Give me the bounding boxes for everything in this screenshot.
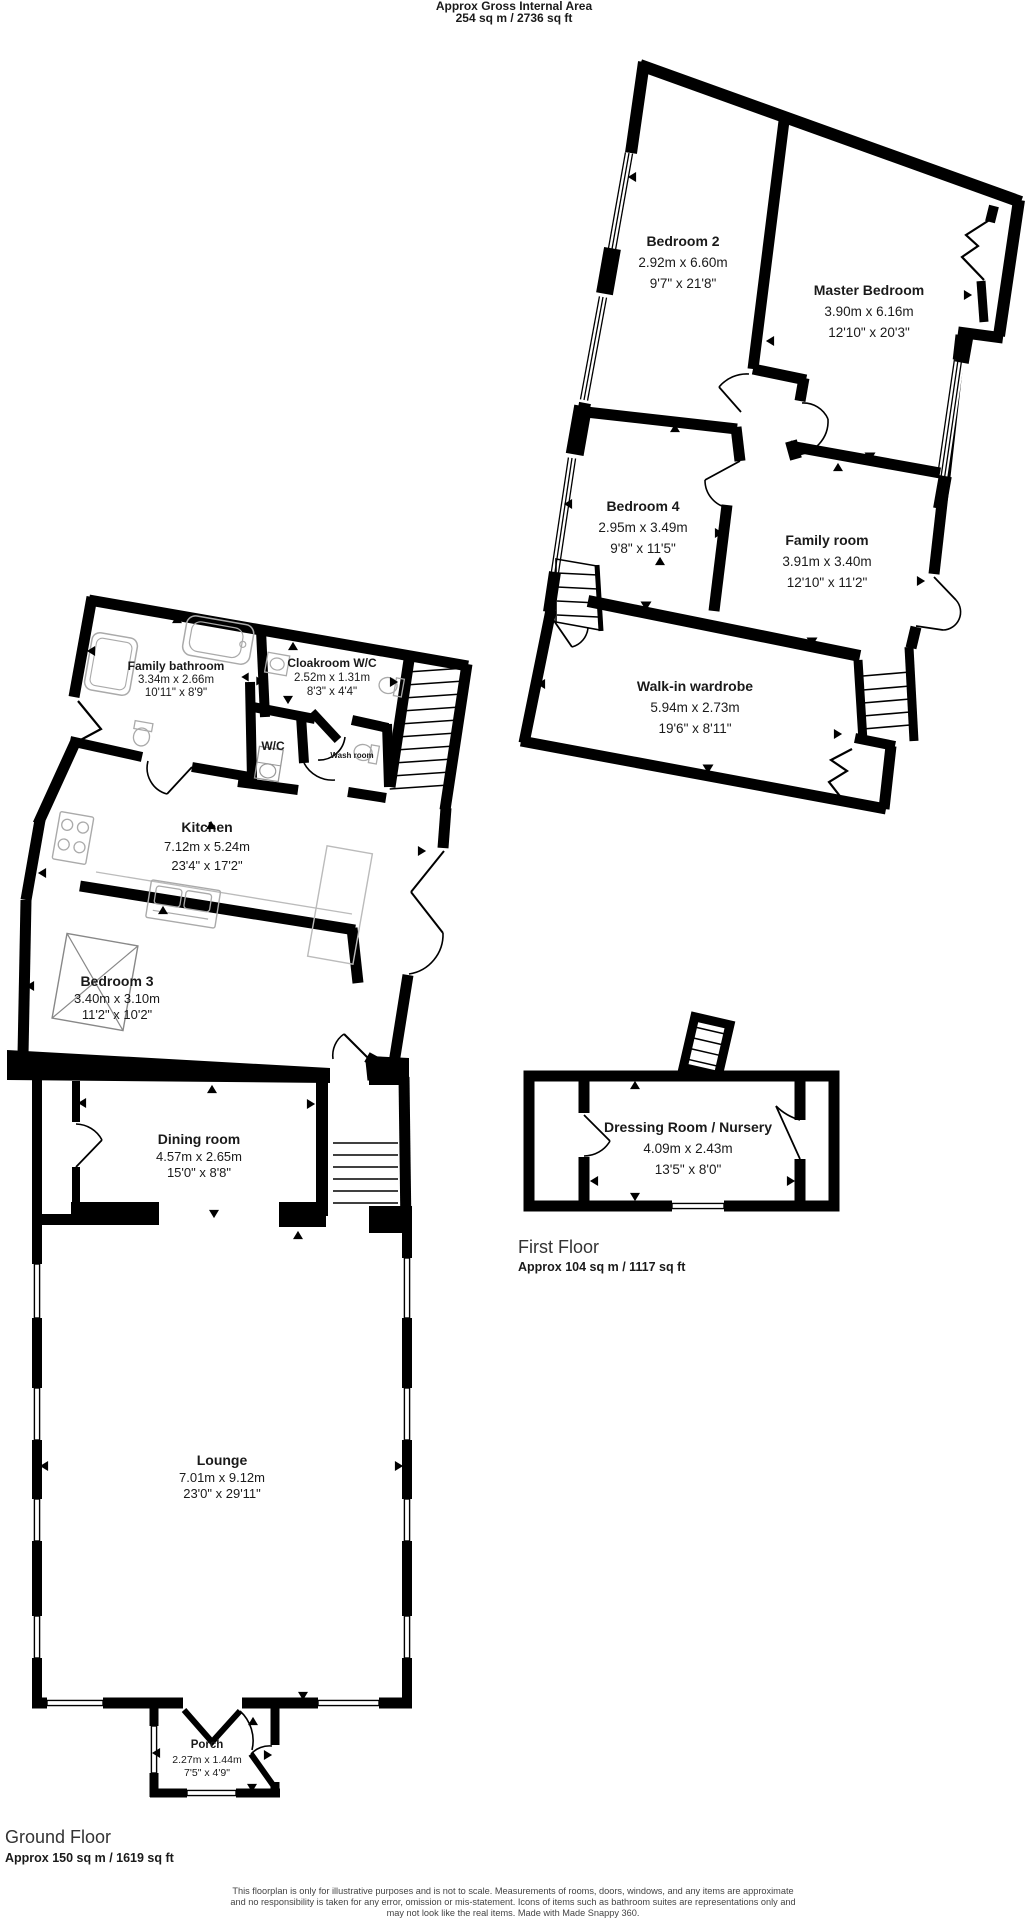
svg-text:Dressing Room / Nursery: Dressing Room / Nursery bbox=[604, 1119, 772, 1135]
svg-text:Cloakroom W/C: Cloakroom W/C bbox=[287, 656, 377, 670]
svg-text:This floorplan is only for ill: This floorplan is only for illustrative … bbox=[232, 1886, 793, 1896]
svg-text:W/C: W/C bbox=[261, 739, 285, 753]
svg-text:3.34m x 2.66m: 3.34m x 2.66m bbox=[138, 674, 214, 686]
svg-text:10'11" x 8'9": 10'11" x 8'9" bbox=[145, 687, 207, 699]
svg-text:254 sq m / 2736 sq ft: 254 sq m / 2736 sq ft bbox=[456, 11, 573, 25]
svg-text:2.92m x 6.60m: 2.92m x 6.60m bbox=[638, 255, 727, 270]
svg-text:15'0" x 8'8": 15'0" x 8'8" bbox=[167, 1165, 231, 1180]
svg-text:Family room: Family room bbox=[785, 532, 868, 548]
svg-text:First Floor: First Floor bbox=[518, 1237, 599, 1257]
svg-text:Approx 150 sq m / 1619 sq ft: Approx 150 sq m / 1619 sq ft bbox=[5, 1851, 175, 1865]
svg-text:7.12m x 5.24m: 7.12m x 5.24m bbox=[164, 839, 250, 854]
svg-text:5.94m x 2.73m: 5.94m x 2.73m bbox=[650, 700, 739, 715]
svg-text:4.09m x 2.43m: 4.09m x 2.43m bbox=[643, 1141, 732, 1156]
svg-text:8'3" x 4'4": 8'3" x 4'4" bbox=[307, 686, 357, 698]
svg-text:2.52m x 1.31m: 2.52m x 1.31m bbox=[294, 672, 370, 684]
svg-text:19'6" x 8'11": 19'6" x 8'11" bbox=[658, 721, 731, 736]
svg-text:Ground Floor: Ground Floor bbox=[5, 1827, 111, 1847]
svg-text:23'4" x 17'2": 23'4" x 17'2" bbox=[171, 858, 243, 873]
svg-text:23'0" x 29'11": 23'0" x 29'11" bbox=[183, 1486, 261, 1501]
svg-text:13'5" x 8'0": 13'5" x 8'0" bbox=[655, 1162, 722, 1177]
svg-text:Lounge: Lounge bbox=[197, 1452, 248, 1468]
svg-text:Approx 104 sq m / 1117 sq ft: Approx 104 sq m / 1117 sq ft bbox=[518, 1260, 686, 1274]
svg-text:Dining room: Dining room bbox=[158, 1131, 240, 1147]
svg-text:2.95m x 3.49m: 2.95m x 3.49m bbox=[598, 520, 687, 535]
svg-text:3.40m x 3.10m: 3.40m x 3.10m bbox=[74, 991, 160, 1006]
svg-text:may not look like the real ite: may not look like the real items. Made w… bbox=[387, 1908, 640, 1918]
svg-text:9'8" x 11'5": 9'8" x 11'5" bbox=[610, 541, 676, 556]
svg-text:7.01m x 9.12m: 7.01m x 9.12m bbox=[179, 1470, 265, 1485]
svg-text:Master Bedroom: Master Bedroom bbox=[814, 282, 924, 298]
svg-text:12'10" x 20'3": 12'10" x 20'3" bbox=[828, 325, 910, 340]
svg-text:2.27m x 1.44m: 2.27m x 1.44m bbox=[172, 1754, 242, 1766]
svg-text:Porch: Porch bbox=[191, 1739, 224, 1751]
svg-text:Bedroom 2: Bedroom 2 bbox=[646, 233, 719, 249]
svg-text:4.57m x 2.65m: 4.57m x 2.65m bbox=[156, 1149, 242, 1164]
svg-text:and no responsibility is taken: and no responsibility is taken for any e… bbox=[230, 1897, 795, 1907]
svg-text:9'7" x 21'8": 9'7" x 21'8" bbox=[650, 276, 717, 291]
svg-text:Walk-in wardrobe: Walk-in wardrobe bbox=[637, 678, 753, 694]
svg-text:3.91m x 3.40m: 3.91m x 3.40m bbox=[782, 554, 871, 569]
svg-text:Bedroom 4: Bedroom 4 bbox=[606, 498, 679, 514]
svg-text:Bedroom 3: Bedroom 3 bbox=[80, 973, 153, 989]
svg-text:7'5" x 4'9": 7'5" x 4'9" bbox=[184, 1767, 230, 1779]
svg-text:3.90m x 6.16m: 3.90m x 6.16m bbox=[824, 304, 913, 319]
svg-text:12'10" x 11'2": 12'10" x 11'2" bbox=[787, 575, 868, 590]
svg-text:11'2" x 10'2": 11'2" x 10'2" bbox=[82, 1007, 153, 1022]
svg-text:Family bathroom: Family bathroom bbox=[128, 659, 225, 673]
svg-text:Wash room: Wash room bbox=[330, 751, 373, 760]
svg-text:Kitchen: Kitchen bbox=[181, 819, 232, 835]
